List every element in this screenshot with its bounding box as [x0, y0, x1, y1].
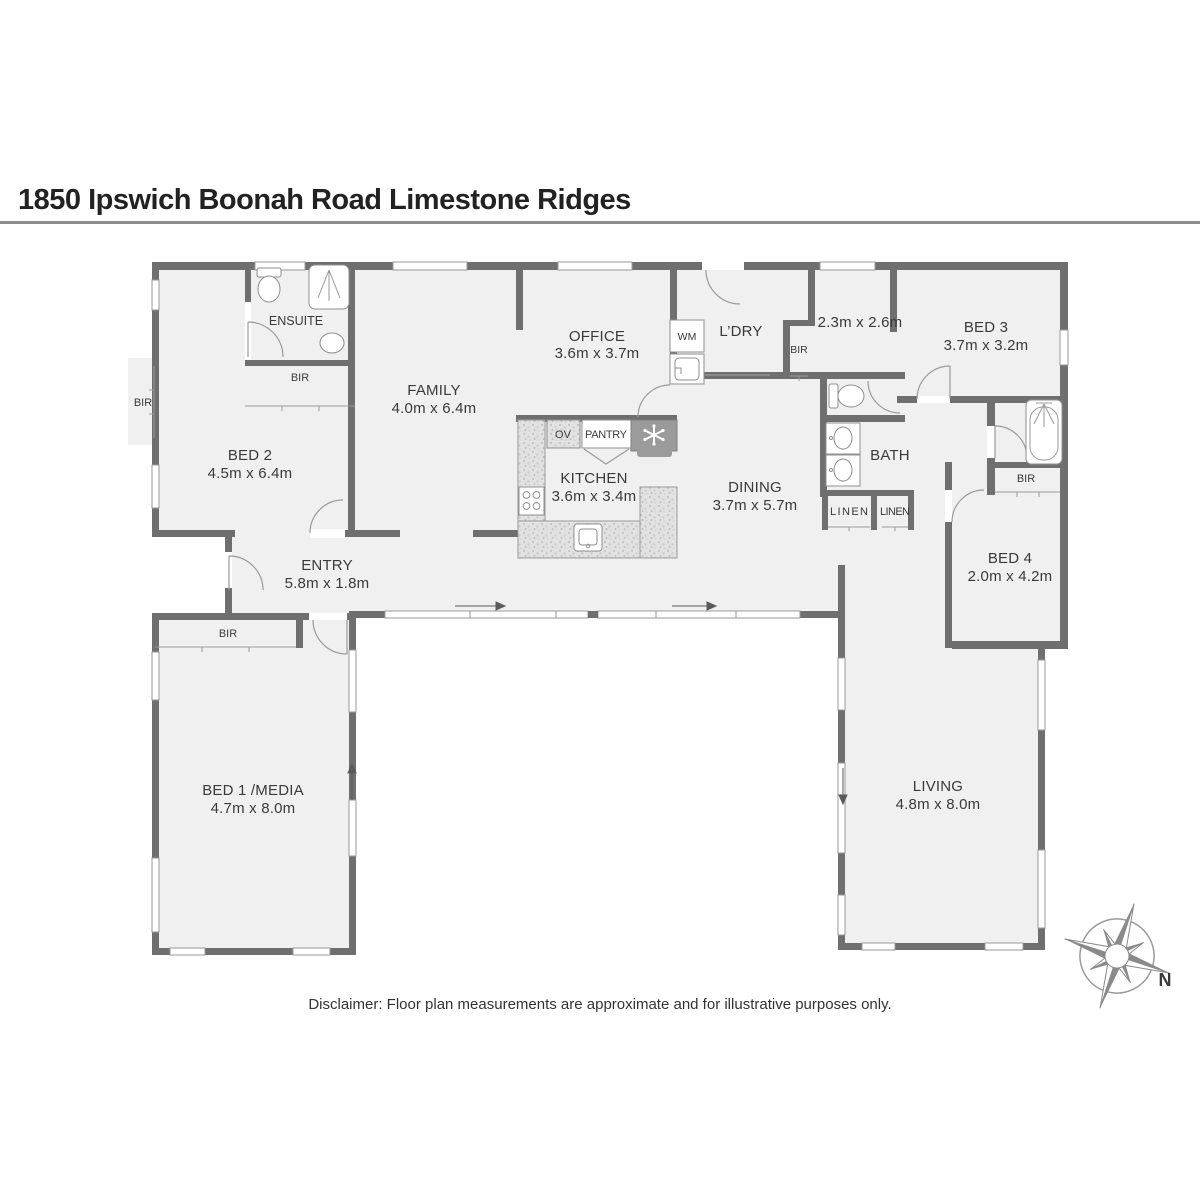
label-living-dims: 4.8m x 8.0m: [896, 796, 981, 813]
label-kitchen-dims: 3.6m x 3.4m: [552, 488, 637, 505]
label-laundry: L’DRY: [719, 323, 762, 340]
label-ensuite: ENSUITE: [269, 314, 323, 328]
label-bed3: BED 3: [964, 319, 1008, 336]
label-office: OFFICE: [569, 328, 625, 345]
label-family: FAMILY: [407, 382, 460, 399]
bathtub-icon: [1026, 400, 1062, 464]
label-bed1: BED 1 /MEDIA: [202, 782, 304, 799]
laundry-tub-icon: [670, 354, 704, 384]
floor-plan-drawing: ENSUITE BIR BIR BED 2 4.5m x 6.4m FAMILY…: [0, 0, 1200, 1200]
label-bath: BATH: [870, 447, 910, 464]
kitchen-sink-icon: [574, 524, 602, 551]
label-ov: OV: [555, 429, 572, 441]
fridge-rangehood-icon: [631, 420, 677, 457]
label-bir-laundry: BIR: [790, 344, 808, 356]
label-bir-ensuite: BIR: [291, 372, 309, 384]
label-bed1-dims: 4.7m x 8.0m: [211, 800, 296, 817]
slide-arrows: [348, 602, 847, 804]
label-dining: DINING: [728, 479, 782, 496]
label-kitchen: KITCHEN: [560, 470, 627, 487]
label-bir-bed1: BIR: [219, 628, 237, 640]
label-entry-dims: 5.8m x 1.8m: [285, 575, 370, 592]
wall-junction: [588, 611, 598, 618]
label-dining-dims: 3.7m x 5.7m: [713, 497, 798, 514]
label-entry: ENTRY: [301, 557, 353, 574]
label-family-dims: 4.0m x 6.4m: [392, 400, 477, 417]
label-bed4-dims: 2.0m x 4.2m: [968, 568, 1053, 585]
ensuite-shower-icon: [309, 265, 349, 309]
ensuite-toilet-icon: [257, 268, 281, 302]
label-pantry: PANTRY: [585, 429, 628, 441]
wc-toilet-icon: [829, 384, 864, 408]
label-store-dims: 2.3m x 2.6m: [818, 314, 903, 331]
label-wm: WM: [678, 331, 697, 343]
compass-north-label: N: [1159, 970, 1172, 990]
label-office-dims: 3.6m x 3.7m: [555, 345, 640, 362]
label-bir-west: BIR: [134, 397, 152, 409]
label-bed4: BED 4: [988, 550, 1032, 567]
bath-basin-icons: [826, 423, 860, 486]
disclaimer-text: Disclaimer: Floor plan measurements are …: [0, 996, 1200, 1013]
label-linen2: LINEN: [880, 506, 910, 518]
label-linen1: LINEN: [830, 506, 868, 518]
ensuite-basin-icon: [320, 333, 344, 353]
label-bir-bed4: BIR: [1017, 473, 1035, 485]
floor-plan-page: 1850 Ipswich Boonah Road Limestone Ridge…: [0, 0, 1200, 1200]
label-bed2: BED 2: [228, 447, 272, 464]
label-bed2-dims: 4.5m x 6.4m: [208, 465, 293, 482]
label-living: LIVING: [913, 778, 963, 795]
label-bed3-dims: 3.7m x 3.2m: [944, 337, 1029, 354]
cooktop-icon: [519, 487, 544, 515]
